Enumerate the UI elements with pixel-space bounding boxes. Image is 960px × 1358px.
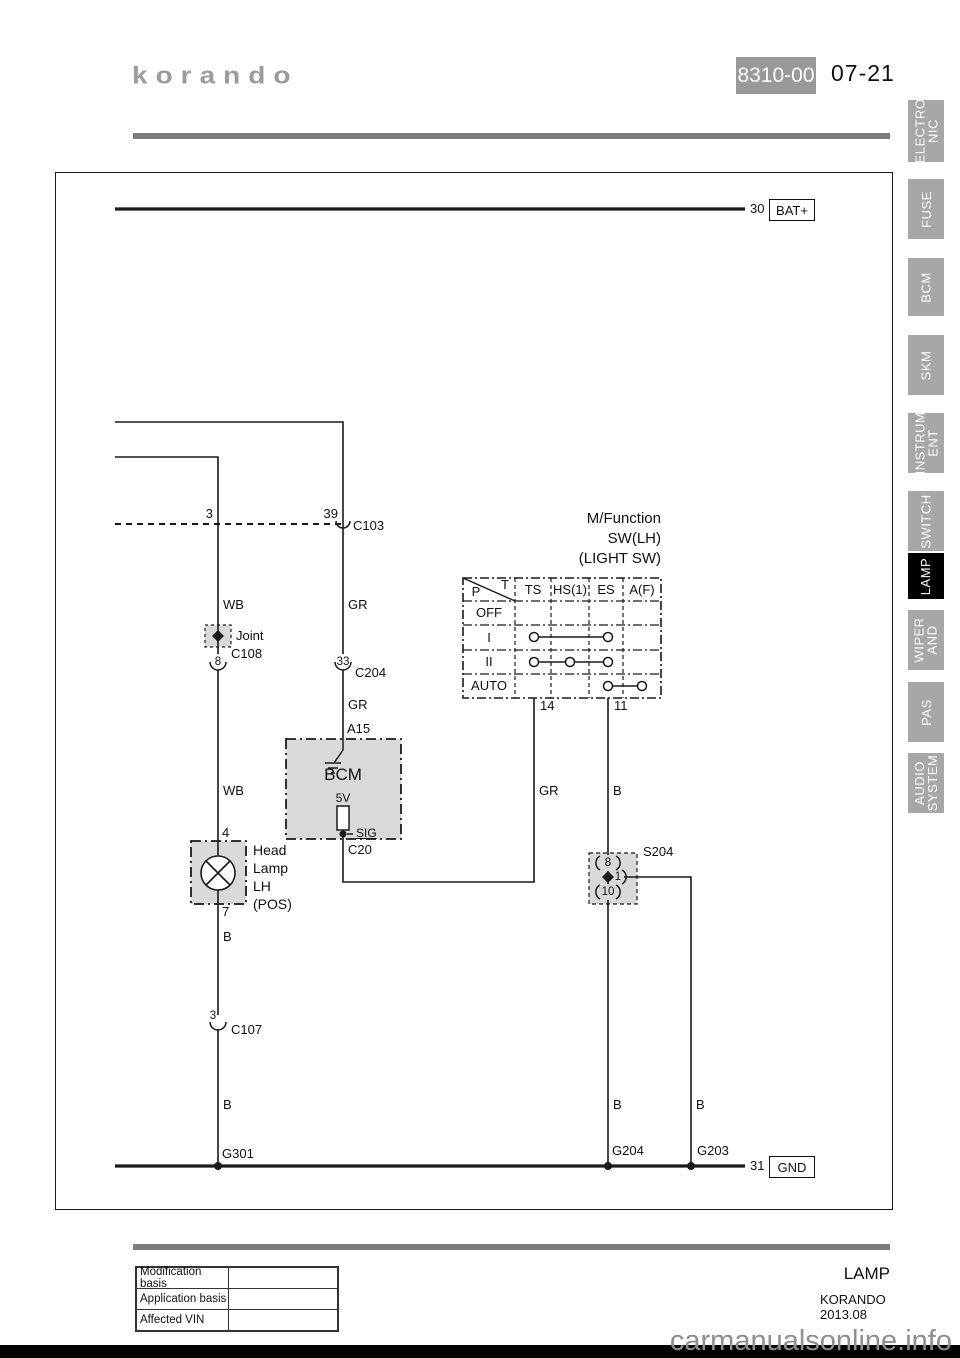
tab-pas[interactable]: PAS: [908, 682, 944, 742]
pin-s204-10: 10: [602, 885, 615, 899]
tab-wiper[interactable]: WIPER AND: [908, 610, 944, 670]
wire-color-gr: GR: [348, 698, 368, 712]
pin-lamp-7: 7: [222, 905, 229, 919]
watermark: carmanualsonline.info: [670, 1325, 952, 1358]
wire-stub-left: [115, 457, 218, 524]
pin-switch-11: 11: [614, 699, 628, 713]
wire-stub-right: [115, 422, 343, 524]
wire-color-b: B: [223, 930, 232, 944]
pin-c108-8: 8: [215, 655, 221, 669]
section-title: LAMP: [844, 1264, 890, 1284]
table-row: Modification basis: [137, 1268, 337, 1288]
tab-label: ELECTRO NIC: [913, 99, 939, 164]
pin-bcm-a15: A15: [347, 722, 370, 736]
wire-color-wb: WB: [223, 598, 244, 612]
wire-color-b: B: [223, 1098, 232, 1112]
tab-skm[interactable]: SKM: [908, 335, 944, 395]
switch-col-ts: TS: [525, 583, 542, 597]
gnd-wire-number: 31: [750, 1159, 764, 1173]
g204-dot: [604, 1162, 612, 1170]
switch-corner-p: P: [472, 585, 481, 599]
tab-label: PAS: [920, 699, 933, 726]
table-cell-empty: [229, 1268, 337, 1288]
table-row: Affected VIN: [137, 1309, 337, 1330]
table-cell-empty: [229, 1310, 337, 1330]
bat-net-box: BAT+: [769, 199, 815, 221]
tab-audio[interactable]: AUDIO SYSTEM: [908, 753, 944, 813]
tab-label: BCM: [919, 272, 932, 302]
switch-row-off: OFF: [476, 606, 502, 620]
gnd-net-box: GND: [769, 1156, 815, 1178]
connector-label-c107: C107: [231, 1023, 262, 1037]
connector-label-c103: C103: [353, 519, 384, 533]
connector-label-c108: C108: [231, 647, 262, 661]
wire-color-gr: GR: [348, 598, 368, 612]
pin-s204-1: 1: [615, 870, 621, 884]
light-switch-title: M/Function SW(LH) (LIGHT SW): [579, 509, 661, 569]
ground-label-g203: G203: [697, 1144, 729, 1158]
sig-node-dot: [340, 831, 347, 838]
tab-label: LAMP: [920, 557, 933, 594]
switch-row-2: II: [485, 655, 492, 669]
tab-label: SKM: [919, 350, 932, 380]
table-cell-empty: [229, 1289, 337, 1309]
pin-c103-39: 39: [324, 507, 338, 521]
switch-row-auto: AUTO: [471, 679, 507, 693]
wire-color-b: B: [613, 1098, 622, 1112]
tab-lamp[interactable]: LAMP: [908, 553, 944, 599]
switch-contacts: [530, 633, 647, 691]
switch-col-es: ES: [597, 583, 614, 597]
wire-b-4: [608, 877, 691, 1166]
tab-instrument[interactable]: INSTRUM ENT: [908, 413, 944, 473]
tab-switch[interactable]: SWITCH: [908, 491, 944, 551]
document-code-badge: 8310-00: [736, 57, 816, 94]
ground-label-g204: G204: [612, 1144, 644, 1158]
headlamp-label: Head Lamp LH (POS): [253, 841, 292, 913]
table-row: Application basis: [137, 1288, 337, 1309]
switch-col-hs1: HS(1): [553, 583, 587, 597]
pin-c103-3: 3: [206, 507, 213, 521]
g203-dot: [687, 1162, 695, 1170]
pin-switch-14: 14: [540, 699, 554, 713]
revision-table: Modification basis Application basis Aff…: [135, 1266, 339, 1332]
pin-s204-8: 8: [605, 856, 611, 870]
table-row-label: Application basis: [137, 1289, 229, 1309]
tab-fuse[interactable]: FUSE: [908, 179, 944, 239]
tab-label: AUDIO SYSTEM: [913, 755, 939, 811]
wiring-diagram: 30 BAT+ 31 GND 3 39 C103 WB Joint 8 C108…: [55, 172, 893, 1210]
connector-label-s204: S204: [643, 845, 673, 859]
page-number: 07-21: [831, 60, 895, 87]
g301-dot: [214, 1162, 222, 1170]
tab-label: SWITCH: [920, 494, 933, 548]
footer-rule: [133, 1244, 890, 1250]
switch-col-af: A(F): [629, 583, 654, 597]
tab-label: INSTRUM ENT: [913, 412, 939, 475]
switch-row-1: I: [487, 631, 491, 645]
pin-c107-3: 3: [210, 1009, 216, 1023]
wire-color-gr: GR: [539, 784, 559, 798]
wire-color-wb: WB: [223, 784, 244, 798]
bcm-sig-label: SIG: [356, 826, 377, 840]
tab-label: FUSE: [920, 191, 933, 228]
connector-label-c20: C20: [348, 843, 372, 857]
wire-color-b: B: [696, 1098, 705, 1112]
table-row-label: Modification basis: [137, 1268, 229, 1288]
tab-label: WIPER AND: [913, 617, 939, 662]
bcm-title: BCM: [324, 768, 362, 782]
ground-label-g301: G301: [222, 1147, 254, 1161]
tab-bcm[interactable]: BCM: [908, 258, 944, 316]
pin-lamp-4: 4: [222, 826, 229, 840]
brand-logo: korando: [132, 62, 298, 89]
resistor-icon: [337, 806, 349, 830]
pin-c204-33: 33: [337, 655, 350, 669]
c107-connector-arc: [210, 1022, 226, 1030]
joint-label: Joint: [236, 629, 263, 643]
wire-color-b: B: [613, 784, 622, 798]
bcm-voltage: 5V: [336, 791, 351, 805]
bat-wire-number: 30: [750, 202, 764, 216]
connector-label-c204: C204: [355, 666, 386, 680]
table-row-label: Affected VIN: [137, 1310, 229, 1330]
header-rule: [133, 133, 890, 139]
tab-electronic[interactable]: ELECTRO NIC: [908, 100, 944, 162]
switch-corner-t: T: [501, 578, 509, 592]
model-version: KORANDO 2013.08: [820, 1292, 890, 1322]
